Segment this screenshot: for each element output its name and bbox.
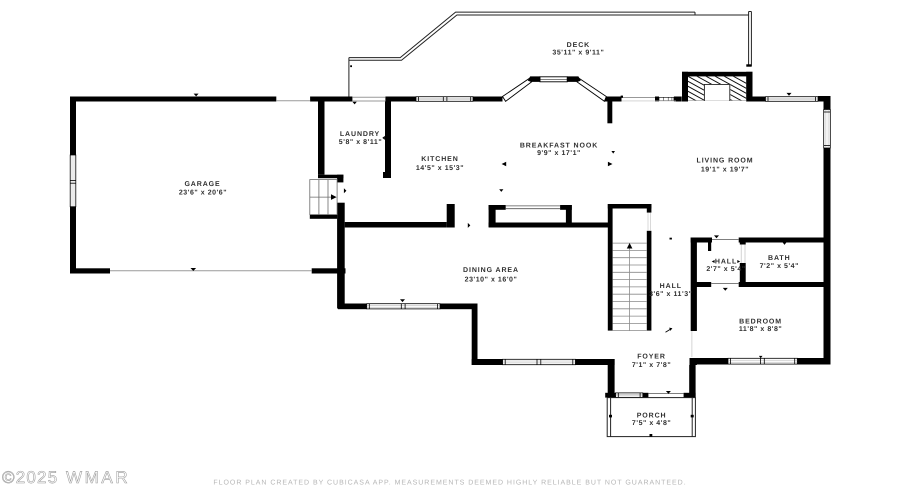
svg-text:DINING AREA: DINING AREA xyxy=(463,267,519,274)
svg-text:WMAR: WMAR xyxy=(66,468,130,487)
svg-text:HALL: HALL xyxy=(715,259,737,266)
svg-text:23'10" x 16'0": 23'10" x 16'0" xyxy=(465,277,518,284)
svg-text:BATH: BATH xyxy=(768,255,791,262)
svg-text:FLOOR PLAN CREATED BY CUBICASA: FLOOR PLAN CREATED BY CUBICASA APP. MEAS… xyxy=(213,480,686,487)
svg-text:2'7" x 5'4": 2'7" x 5'4" xyxy=(706,266,745,273)
svg-text:9'9" x 17'1": 9'9" x 17'1" xyxy=(537,150,581,157)
svg-text:©2025: ©2025 xyxy=(2,468,58,487)
svg-text:HALL: HALL xyxy=(660,283,682,290)
svg-text:3'6" x 11'3": 3'6" x 11'3" xyxy=(649,291,692,298)
svg-text:35'11" x 9'11": 35'11" x 9'11" xyxy=(552,50,604,57)
svg-text:7'5" x 4'8": 7'5" x 4'8" xyxy=(632,420,671,427)
svg-text:7'2" x 5'4": 7'2" x 5'4" xyxy=(760,263,799,270)
svg-text:5'8" x 8'11": 5'8" x 8'11" xyxy=(339,139,382,146)
svg-text:KITCHEN: KITCHEN xyxy=(421,156,458,163)
svg-text:BEDROOM: BEDROOM xyxy=(739,318,782,325)
svg-text:11'8" x 8'8": 11'8" x 8'8" xyxy=(739,326,782,333)
svg-text:LIVING ROOM: LIVING ROOM xyxy=(697,158,754,165)
svg-text:FOYER: FOYER xyxy=(637,354,666,361)
svg-text:DECK: DECK xyxy=(567,42,590,49)
svg-text:23'6" x 20'6": 23'6" x 20'6" xyxy=(179,189,227,196)
svg-text:GARAGE: GARAGE xyxy=(184,181,220,188)
svg-text:19'1" x 19'7": 19'1" x 19'7" xyxy=(701,167,749,174)
svg-text:7'1" x 7'8": 7'1" x 7'8" xyxy=(632,362,671,369)
svg-text:PORCH: PORCH xyxy=(637,413,667,420)
svg-text:14'5" x 15'3": 14'5" x 15'3" xyxy=(416,165,464,172)
svg-text:BREAKFAST NOOK: BREAKFAST NOOK xyxy=(520,142,598,149)
svg-text:LAUNDRY: LAUNDRY xyxy=(340,131,380,138)
